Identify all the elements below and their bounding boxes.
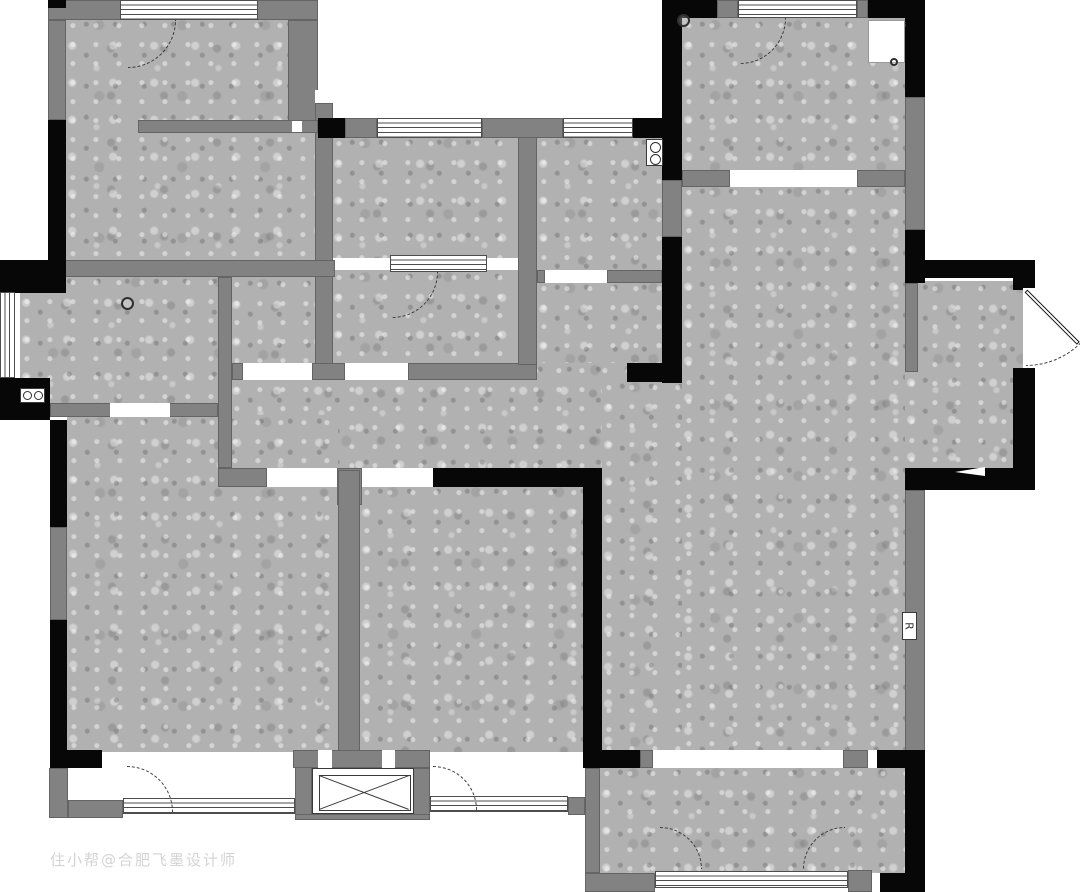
wall-segment [662,0,717,18]
wall-opening [318,750,332,768]
wall-segment [312,363,345,380]
wall-opening [653,750,843,768]
wall-segment [1013,260,1035,290]
wall-segment [218,468,267,487]
wall-opening [267,468,337,487]
wall-segment [857,170,905,187]
window-band [563,118,633,138]
wall-opening [315,90,333,103]
wall-segment [880,873,925,892]
wall-segment [68,800,123,818]
wall-segment [50,750,102,768]
window-band [738,0,857,18]
burner-icon [23,391,32,400]
riser-label: R [902,612,917,640]
wall-segment [662,180,682,237]
floor-plan-canvas: 住小帮@合肥飞墨设计师 R [0,0,1080,892]
wall-segment [315,103,333,365]
wall-segment [640,750,653,768]
riser-label-text: R [897,620,923,633]
wall-opening [868,750,877,768]
wall-segment [857,0,868,18]
wall-segment [905,283,918,372]
wall-segment [682,170,730,187]
wall-segment [345,118,377,138]
wall-segment [413,768,430,818]
wall-segment [717,0,738,18]
wall-segment [568,797,585,815]
burner-icon [34,391,43,400]
watermark: 住小帮@合肥飞墨设计师 [50,849,237,870]
circle-icon [650,154,661,165]
wall-segment [868,0,925,18]
wall-segment [48,120,66,262]
window-band [655,871,848,888]
wall-opening [872,873,880,890]
floor-room-bottom-right [600,766,905,875]
wall-opening [243,363,312,380]
window-band [390,255,487,272]
wall-opening [545,270,607,283]
wall-segment [50,527,67,620]
wall-segment [905,230,925,283]
wall-segment [905,97,925,230]
wall-segment [585,768,600,873]
window-band [377,118,482,138]
wall-segment [905,18,925,97]
wall-segment [583,487,602,768]
wall-segment [607,270,662,283]
closet-box [868,20,905,63]
wall-segment [0,260,66,293]
wall-segment [218,277,232,468]
wall-segment [50,420,67,527]
sink-circles-icon [646,139,663,166]
wall-segment [288,20,318,133]
window-band [120,0,258,20]
wall-segment [20,260,335,277]
wall-opening [362,468,433,487]
wall-opening [292,121,302,132]
wall-segment [138,120,318,133]
floor-hall-extension [602,380,682,750]
wall-segment [843,750,868,768]
wall-segment [585,750,640,768]
floor-bedroom-middle [360,485,583,752]
wall-segment [232,363,243,380]
shaft-cross-icon [312,768,414,814]
wall-segment [848,870,872,892]
floor-closet-room [332,136,518,258]
wall-segment [482,118,563,138]
wall-segment [585,873,655,892]
floor-entry [905,281,1023,470]
wall-segment [537,270,545,283]
door-swing-arc [127,766,173,812]
wall-segment [627,363,682,382]
wall-segment [295,814,430,820]
wall-segment [408,363,537,380]
wall-segment [905,750,925,890]
floor-laundry [537,136,662,272]
wall-opening [110,403,170,417]
circle-fixture-icon [890,58,898,66]
floor-bedroom-top-left [66,18,318,262]
floor-bedroom-bottom-left [67,415,338,752]
window-band [0,292,15,378]
wall-segment [518,118,537,365]
wall-segment [48,20,66,120]
wall-opening [345,363,408,380]
wall-segment [293,750,430,768]
wall-segment [433,468,602,487]
wall-segment [318,118,345,138]
wall-segment [48,0,66,8]
wall-segment [50,620,67,750]
door-swing-arc [433,766,477,810]
floor-living-hall [682,185,905,750]
circle-fixture-icon [121,297,134,310]
gas-stove-icon [20,388,45,403]
wall-segment [49,768,68,818]
wall-segment [338,470,360,768]
circle-icon [650,142,661,153]
circle-fixture-icon [677,14,690,27]
wall-opening [730,170,857,187]
wall-opening [382,750,395,768]
